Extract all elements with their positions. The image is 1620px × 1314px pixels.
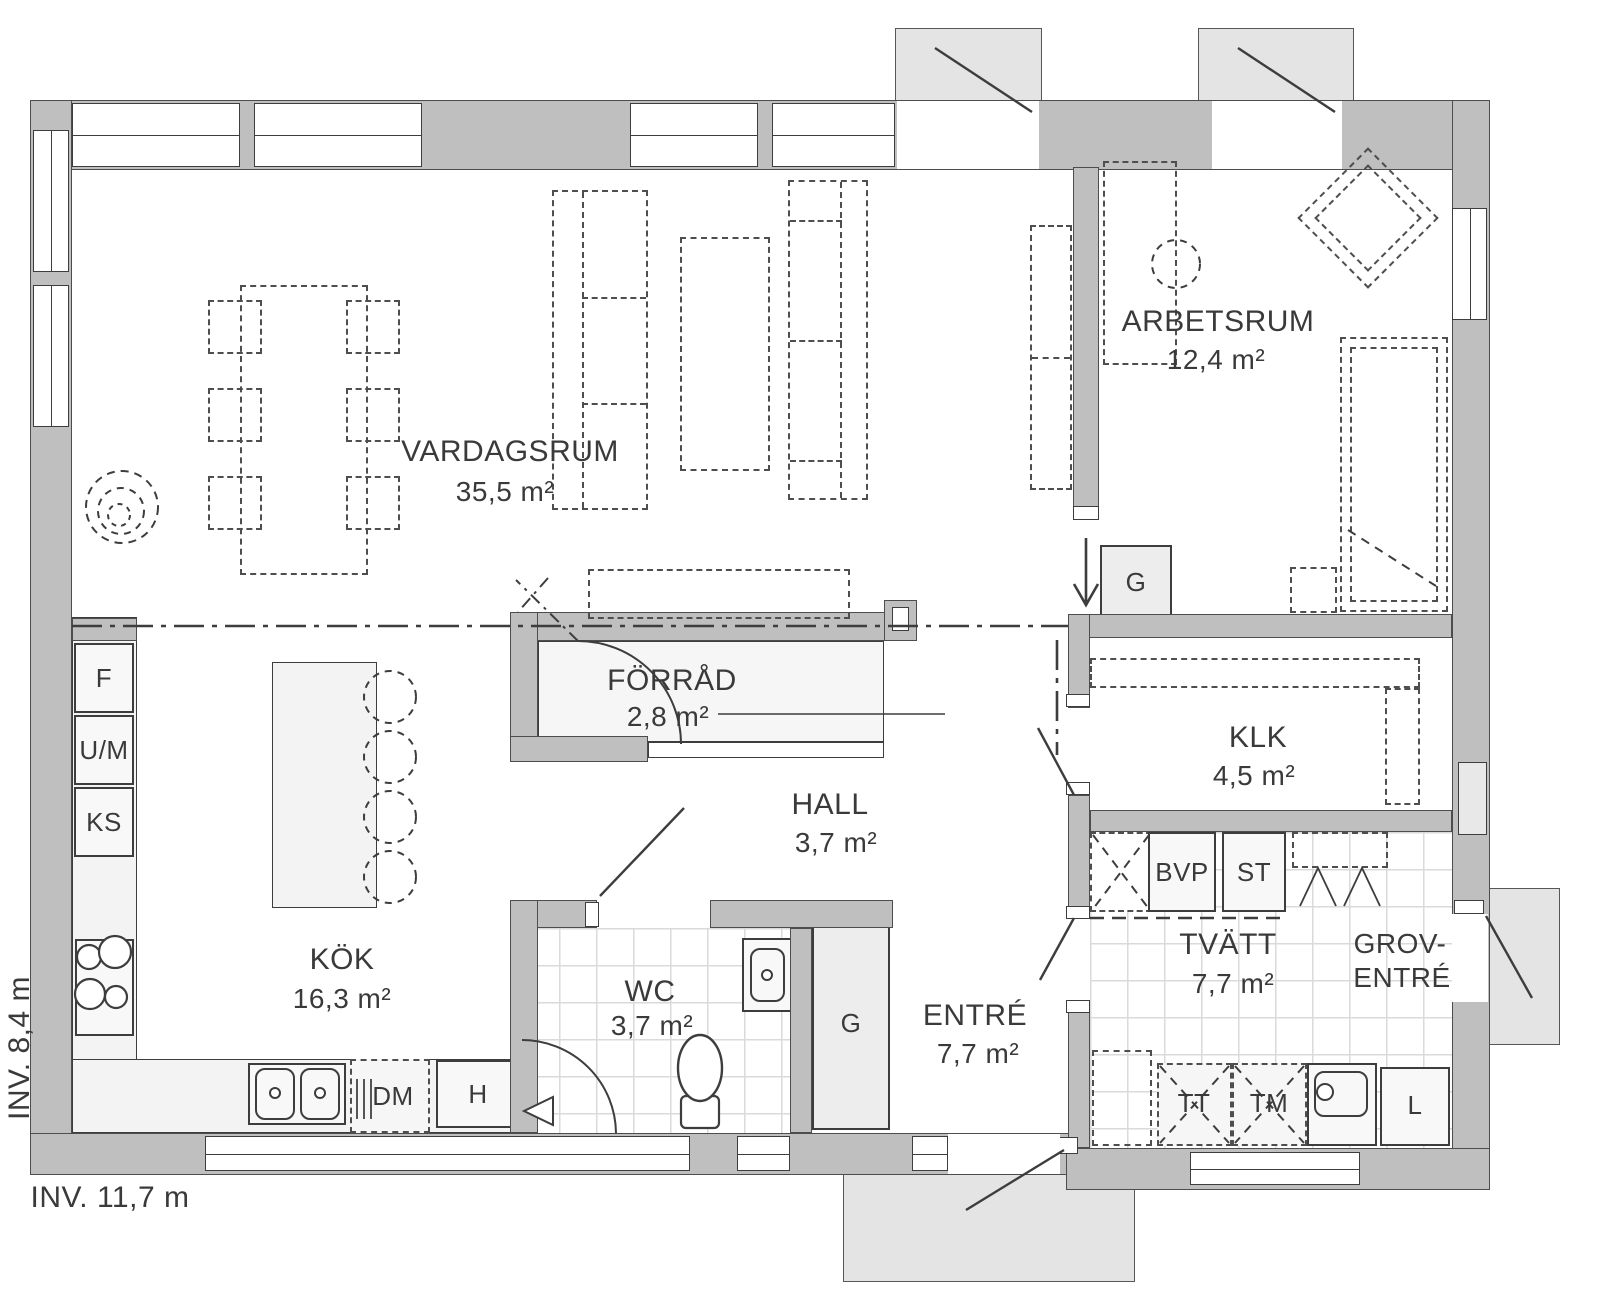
- bed-fold-line: [1348, 530, 1436, 586]
- door-swing-tvatt: [1040, 918, 1074, 980]
- door-leaf-tick: [518, 578, 548, 612]
- door-swing-porch-right: [1238, 48, 1335, 112]
- stove-burner: [99, 936, 131, 968]
- plan-linework: [0, 0, 1620, 1314]
- hanger-icon: [1300, 868, 1336, 906]
- room-area-hall: 3,7 m²: [795, 829, 877, 857]
- door-swing-klk: [1038, 728, 1074, 795]
- room-label-entre: ENTRÉ: [923, 1001, 1027, 1031]
- room-label-klk: KLK: [1229, 723, 1287, 753]
- room-label-grov: GROV-: [1354, 930, 1447, 958]
- dimension-inner-width: INV. 11,7 m: [31, 1183, 190, 1213]
- door-leaf-forrad: [516, 580, 578, 641]
- bar-stool: [364, 731, 416, 783]
- dimension-inner-height: INV. 8,4 m: [5, 976, 35, 1120]
- label-fridge: KS: [86, 809, 122, 835]
- label-linen: L: [1408, 1092, 1423, 1118]
- room-label-grov-entre: ENTRÉ: [1353, 964, 1450, 992]
- room-area-arbetsrum: 12,4 m²: [1167, 346, 1265, 374]
- door-swing-wc: [600, 808, 684, 896]
- room-area-wc: 3,7 m²: [611, 1012, 693, 1040]
- stove-burner: [105, 986, 127, 1008]
- label-washer: TM: [1250, 1090, 1289, 1116]
- shower-head-icon: [524, 1097, 553, 1125]
- stove-burner: [77, 945, 101, 969]
- kitchen-sink-drain: [315, 1088, 325, 1098]
- label-wardrobe-hall: G: [841, 1010, 862, 1036]
- laundry-sink-drain: [1317, 1084, 1333, 1100]
- label-dishwasher: DM: [372, 1083, 413, 1109]
- entrance-arrow: [1074, 538, 1098, 605]
- room-label-tvatt: TVÄTT: [1179, 930, 1277, 960]
- fireplace-symbol: [98, 488, 144, 534]
- room-label-arbetsrum: ARBETSRUM: [1122, 307, 1315, 337]
- floor-drain-cross: [1093, 835, 1149, 909]
- door-swing-porch-left: [935, 48, 1032, 112]
- room-label-vardagsrum: VARDAGSRUM: [401, 437, 619, 467]
- room-label-kok: KÖK: [310, 945, 375, 975]
- room-label-hall: HALL: [791, 790, 868, 820]
- label-heat-pump: BVP: [1155, 859, 1209, 885]
- label-dryer: TT: [1178, 1090, 1211, 1116]
- fireplace-symbol: [86, 471, 158, 543]
- shower-arc: [522, 1040, 616, 1133]
- bar-stool: [364, 791, 416, 843]
- wc-sink-drain: [762, 970, 772, 980]
- room-area-tvatt: 7,7 m²: [1192, 970, 1274, 998]
- room-label-forrad: FÖRRÅD: [607, 666, 737, 696]
- room-area-forrad: 2,8 m²: [627, 703, 709, 731]
- label-freezer: F: [96, 665, 112, 691]
- door-swing-entry: [966, 1150, 1064, 1210]
- kitchen-sink-drain: [270, 1088, 280, 1098]
- room-area-entre: 7,7 m²: [937, 1040, 1019, 1068]
- stove-burner: [75, 979, 105, 1009]
- room-area-klk: 4,5 m²: [1213, 762, 1295, 790]
- desk-chair: [1152, 240, 1200, 288]
- fireplace-symbol: [108, 504, 130, 526]
- hanger-icon: [1344, 868, 1380, 906]
- floor-plan: VARDAGSRUM 35,5 m² ARBETSRUM 12,4 m² FÖR…: [0, 0, 1620, 1314]
- bar-stool: [364, 671, 416, 723]
- label-st-cabinet: ST: [1237, 859, 1271, 885]
- bar-stool: [364, 851, 416, 903]
- label-h-cabinet: H: [468, 1081, 487, 1107]
- door-swing-grov-entre: [1486, 916, 1532, 998]
- label-oven-micro: U/M: [79, 737, 128, 763]
- room-label-wc: WC: [625, 977, 676, 1007]
- toilet-bowl: [678, 1035, 722, 1101]
- room-area-kok: 16,3 m²: [293, 985, 391, 1013]
- room-area-vardagsrum: 35,5 m²: [456, 478, 554, 506]
- label-wardrobe-arbetsrum: G: [1126, 569, 1147, 595]
